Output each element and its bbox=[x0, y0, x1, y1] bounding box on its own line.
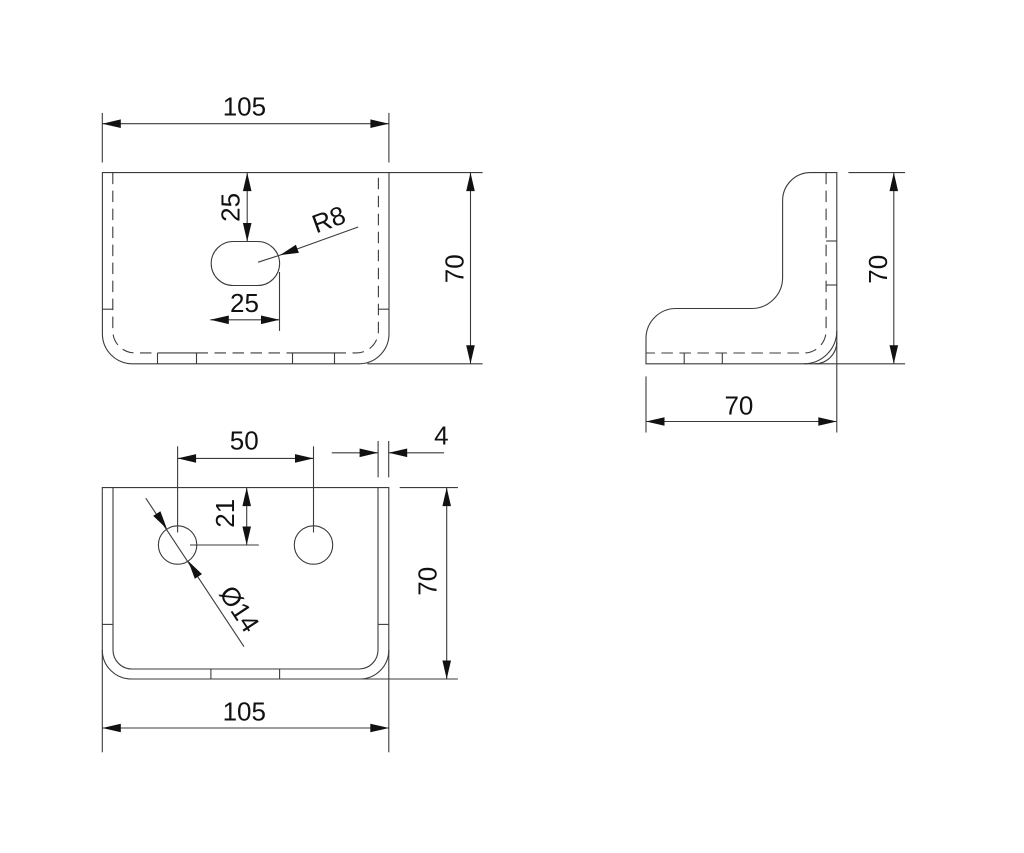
svg-text:70: 70 bbox=[412, 567, 442, 596]
svg-text:105: 105 bbox=[223, 697, 266, 727]
svg-text:21: 21 bbox=[210, 499, 240, 528]
svg-text:70: 70 bbox=[724, 391, 753, 421]
svg-text:4: 4 bbox=[434, 420, 448, 450]
svg-text:70: 70 bbox=[863, 255, 893, 284]
svg-text:25: 25 bbox=[215, 193, 245, 222]
svg-text:50: 50 bbox=[230, 426, 259, 456]
svg-text:25: 25 bbox=[230, 288, 259, 318]
svg-text:105: 105 bbox=[223, 92, 266, 122]
svg-text:70: 70 bbox=[439, 254, 469, 283]
